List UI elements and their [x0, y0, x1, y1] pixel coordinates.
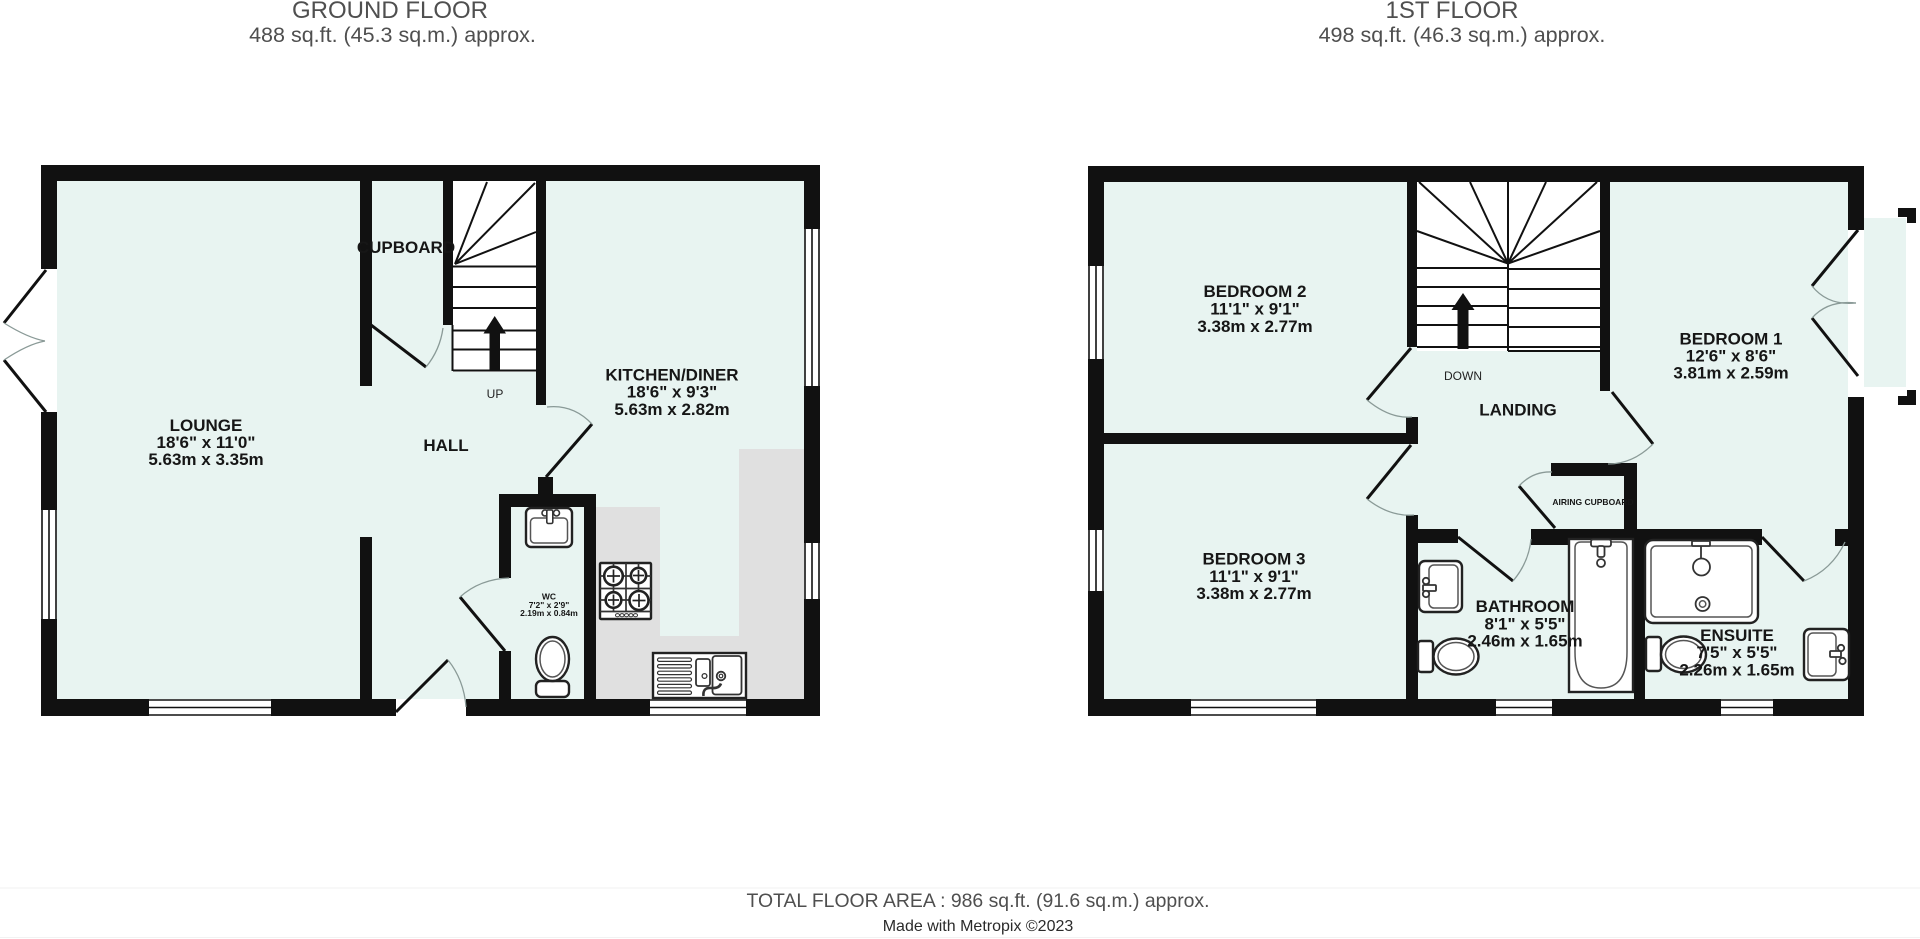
svg-text:2.19m x 0.84m: 2.19m x 0.84m: [520, 608, 578, 618]
svg-text:UP: UP: [487, 387, 504, 401]
svg-text:Made with Metropix ©2023: Made with Metropix ©2023: [883, 918, 1074, 935]
svg-text:BEDROOM 3: BEDROOM 3: [1203, 550, 1306, 569]
svg-text:3.38m x 2.77m: 3.38m x 2.77m: [1196, 584, 1311, 603]
svg-text:TOTAL FLOOR AREA : 986 sq.ft.: TOTAL FLOOR AREA : 986 sq.ft. (91.6 sq.m…: [746, 890, 1209, 912]
svg-text:BEDROOM 2: BEDROOM 2: [1204, 282, 1307, 301]
svg-text:GROUND FLOOR: GROUND FLOOR: [292, 0, 488, 24]
svg-text:CUPBOARD: CUPBOARD: [357, 238, 455, 257]
svg-text:1ST FLOOR: 1ST FLOOR: [1386, 0, 1519, 24]
svg-text:3.38m x 2.77m: 3.38m x 2.77m: [1197, 317, 1312, 336]
svg-text:BATHROOM: BATHROOM: [1476, 597, 1575, 616]
svg-text:3.81m x 2.59m: 3.81m x 2.59m: [1673, 364, 1788, 383]
svg-text:5.63m x 3.35m: 5.63m x 3.35m: [148, 450, 263, 469]
svg-text:498 sq.ft. (46.3 sq.m.) approx: 498 sq.ft. (46.3 sq.m.) approx.: [1319, 23, 1606, 47]
svg-text:488 sq.ft. (45.3 sq.m.) approx: 488 sq.ft. (45.3 sq.m.) approx.: [249, 23, 536, 47]
svg-text:AIRING CUPBOARD: AIRING CUPBOARD: [1552, 497, 1633, 507]
svg-text:2.26m x 1.65m: 2.26m x 1.65m: [1679, 661, 1794, 680]
svg-text:DOWN: DOWN: [1444, 369, 1482, 383]
svg-text:7'5" x 5'5": 7'5" x 5'5": [1697, 643, 1778, 662]
svg-text:5.63m x 2.82m: 5.63m x 2.82m: [614, 400, 729, 419]
svg-text:LANDING: LANDING: [1479, 401, 1556, 420]
svg-text:2.46m x 1.65m: 2.46m x 1.65m: [1467, 632, 1582, 651]
svg-text:11'1" x 9'1": 11'1" x 9'1": [1210, 300, 1299, 319]
svg-text:HALL: HALL: [423, 436, 468, 455]
svg-text:18'6" x 9'3": 18'6" x 9'3": [627, 383, 717, 402]
